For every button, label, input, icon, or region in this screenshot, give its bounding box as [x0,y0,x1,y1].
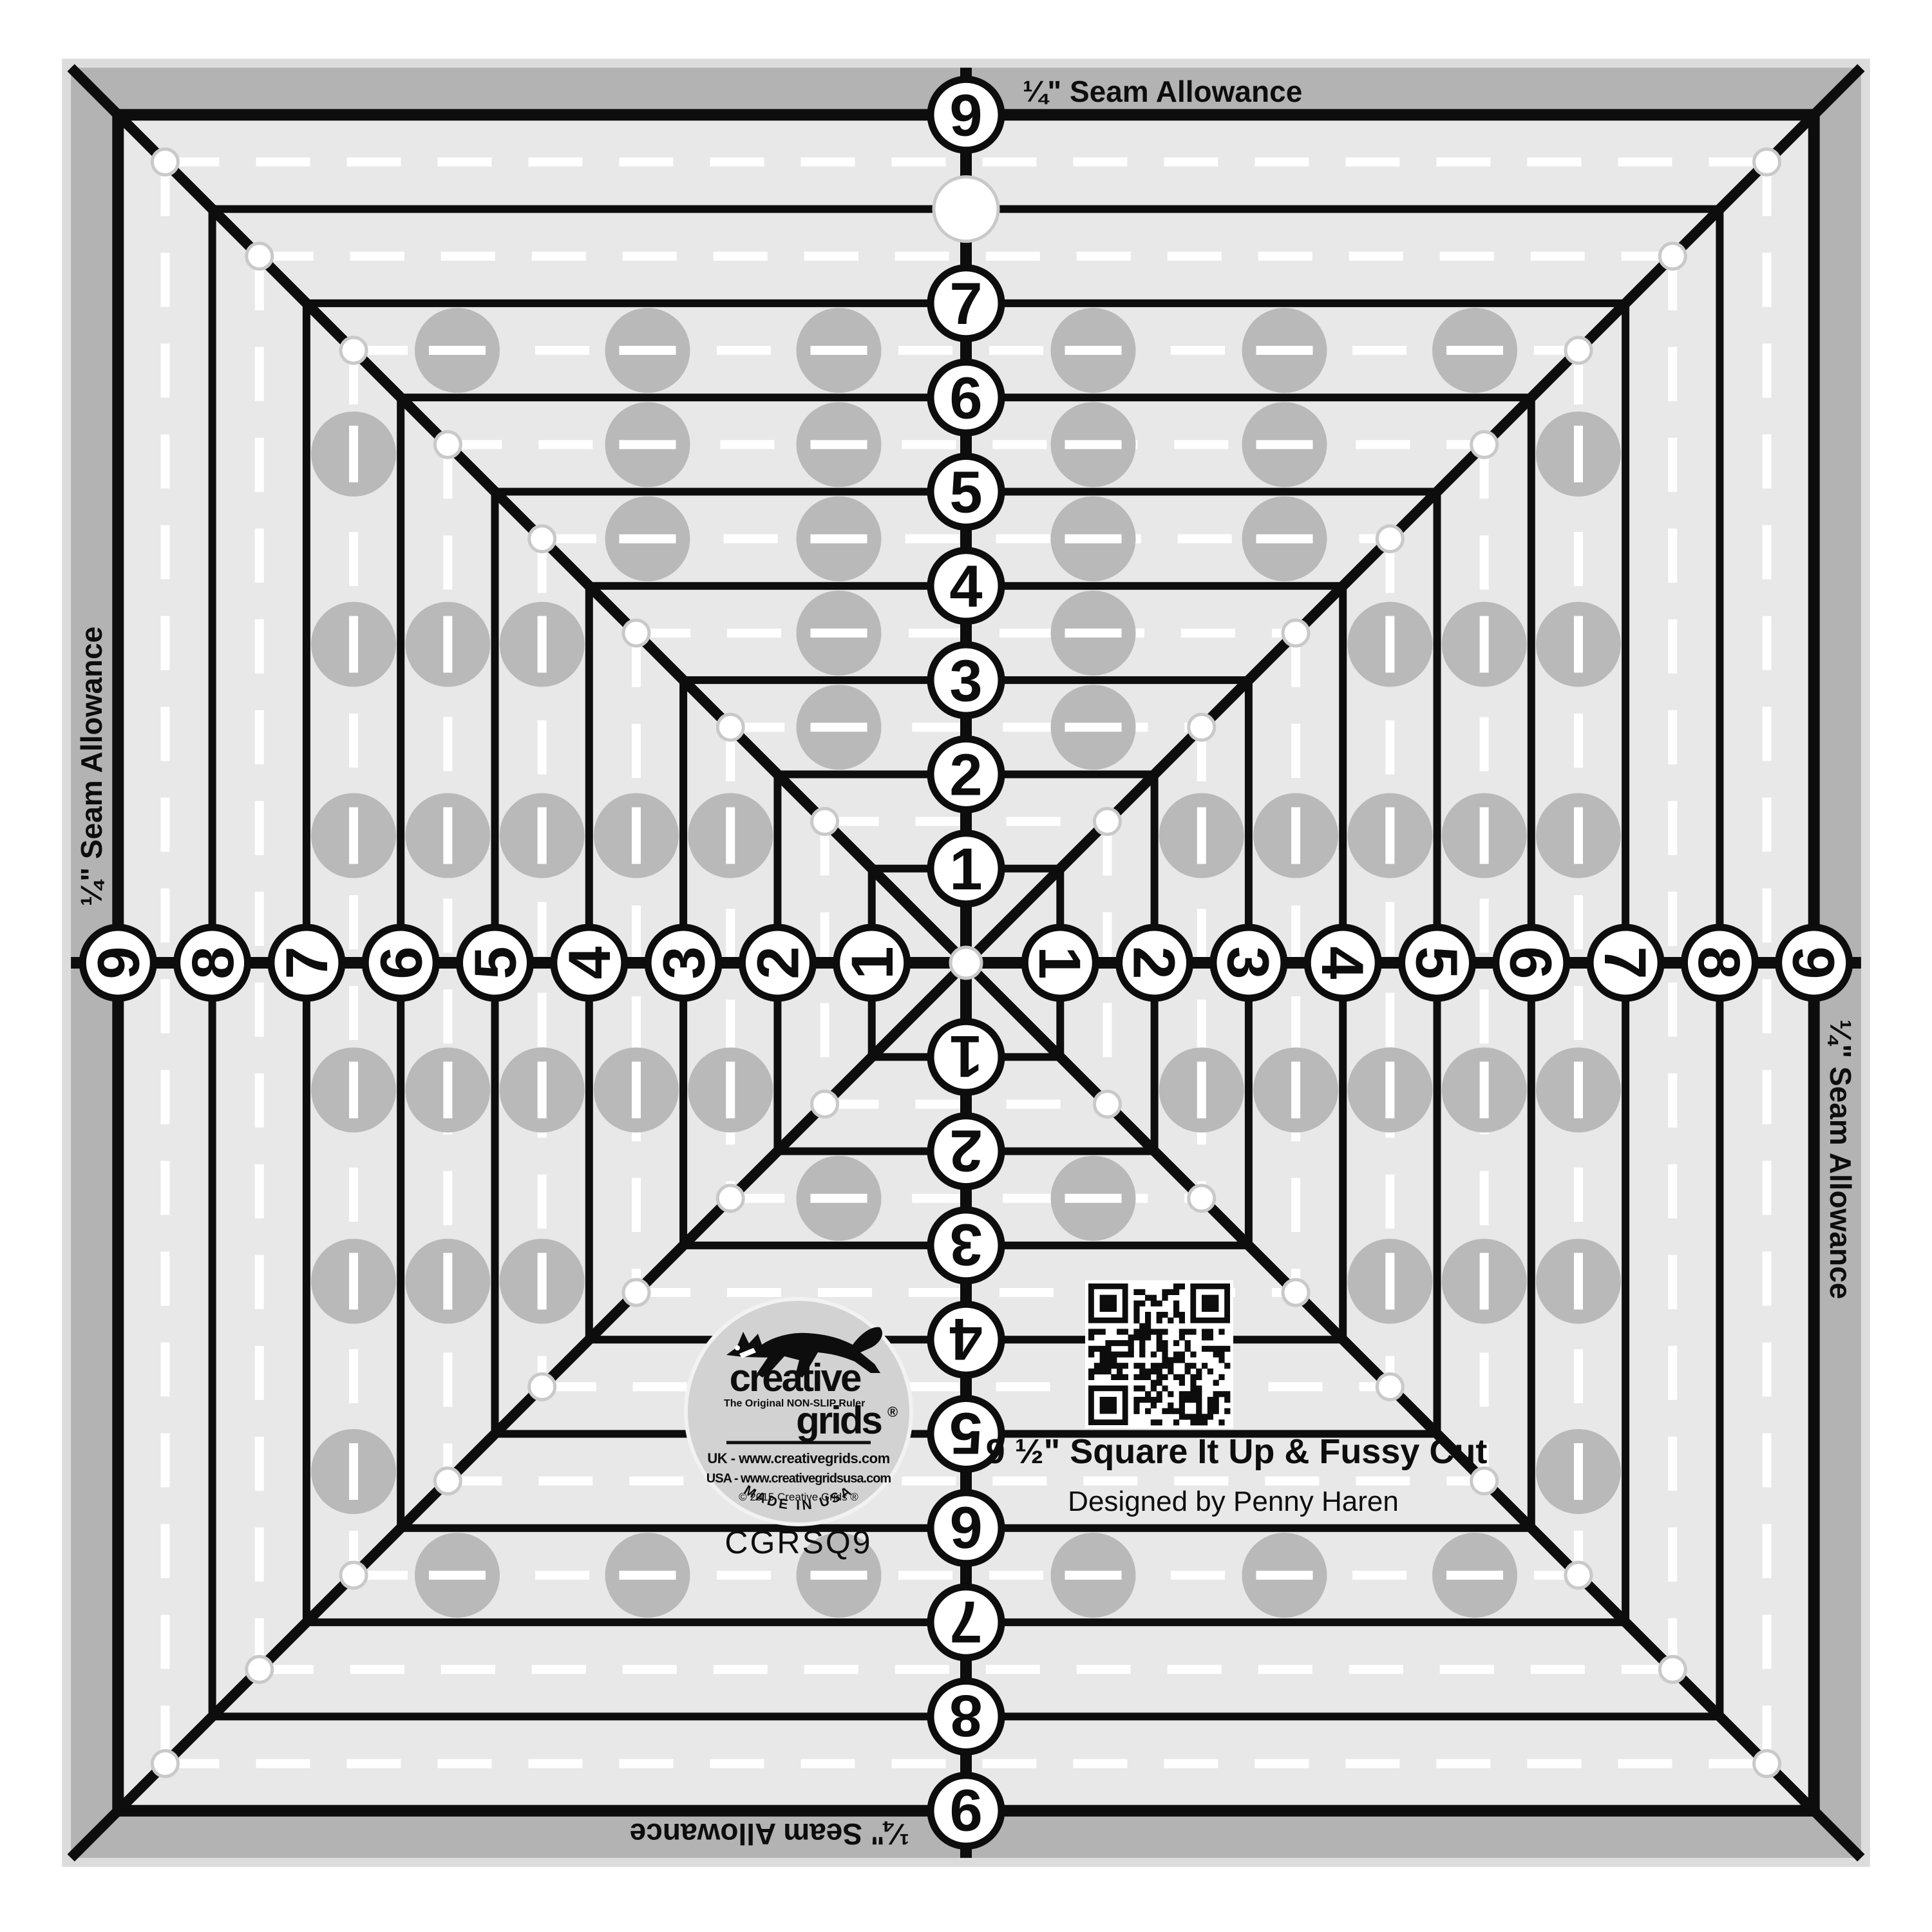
qr-module [1139,1334,1145,1340]
diagonal-marker-dot [812,809,838,835]
qr-module [1133,1408,1139,1414]
diagonal-marker-dot [341,1562,366,1588]
diagonal-marker-dot [152,1751,178,1777]
number-label: 6 [949,1495,982,1560]
qr-module [1224,1391,1230,1397]
qr-module [1105,1340,1111,1346]
grip-dot-dash [1480,616,1489,673]
grip-dot-dash [1574,1443,1583,1500]
grip-dot-dash [1065,440,1122,449]
qr-module [1100,1352,1106,1358]
number-label: 7 [949,271,982,337]
grip-dot-dash [1385,616,1394,673]
qr-module [1179,1380,1185,1386]
qr-module [1088,1329,1094,1334]
qr-module [1196,1391,1202,1397]
qr-module [1190,1414,1196,1419]
diagonal-marker-dot [623,1280,649,1305]
qr-module [1190,1391,1196,1397]
grip-dot-dash [1574,1253,1583,1309]
diagonal-marker-dot [1566,1562,1591,1588]
qr-module [1145,1323,1151,1329]
grip-dot-dash [429,1571,486,1580]
qr-module [1133,1385,1139,1391]
qr-module [1162,1385,1168,1391]
qr-module [1173,1419,1179,1425]
qr-module [1133,1329,1139,1334]
qr-module [1151,1385,1157,1391]
qr-module [1151,1380,1157,1386]
qr-module [1145,1312,1151,1318]
qr-module [1105,1346,1111,1352]
qr-module [1088,1368,1094,1374]
number-label: 5 [1403,946,1469,979]
diagonal-marker-dot [812,1091,838,1117]
qr-module [1190,1352,1196,1358]
grip-dot-dash [810,629,867,638]
qr-module [1162,1329,1168,1334]
qr-module [1122,1340,1128,1346]
qr-module [1145,1334,1151,1340]
grip-dot-dash [1574,1062,1583,1119]
qr-module [1162,1340,1168,1346]
qr-module [1133,1403,1139,1408]
qr-module [1207,1329,1213,1334]
qr-module [1139,1340,1145,1346]
qr-module [1105,1357,1111,1363]
qr-module [1133,1306,1139,1312]
qr-module [1157,1363,1162,1368]
qr-module [1133,1374,1139,1380]
qr-module [1185,1346,1191,1352]
qr-module [1151,1368,1157,1374]
qr-module [1139,1397,1145,1403]
qr-module [1151,1419,1157,1425]
qr-module [1196,1414,1202,1419]
qr-module [1162,1295,1168,1301]
qr-module [1168,1357,1173,1363]
qr-module [1117,1374,1122,1380]
grip-dot-dash [429,346,486,355]
qr-module [1094,1368,1100,1374]
diagonal-marker-dot [623,620,649,646]
diagonal-marker-dot [529,1374,555,1399]
qr-module [1100,1357,1106,1363]
qr-module [1218,1374,1224,1380]
qr-module [1224,1346,1230,1352]
grip-dot-dash [1574,807,1583,864]
grip-dot-dash [349,1253,358,1309]
qr-module [1179,1408,1185,1414]
number-label: 2 [746,946,811,979]
diagonal-marker-dot [1566,337,1591,363]
diagonal-marker-dot [247,243,272,269]
qr-module [1207,1414,1213,1419]
qr-module [1139,1363,1145,1368]
qr-module [1213,1403,1219,1408]
qr-module [1157,1318,1162,1323]
grip-dot-dash [1385,1253,1394,1309]
qr-module [1088,1374,1094,1380]
qr-module [1179,1391,1185,1397]
number-label: 1 [949,837,982,902]
qr-module [1173,1374,1179,1380]
brand-url-uk: UK - www.creativegrids.com [707,1450,889,1466]
qr-module [1162,1374,1168,1380]
grip-dot-dash [538,1062,547,1119]
qr-module [1157,1329,1162,1334]
qr-module [1157,1374,1162,1380]
qr-module [1213,1380,1219,1386]
qr-module [1196,1374,1202,1380]
grip-dot-dash [1291,807,1300,864]
qr-module [1213,1346,1219,1352]
qr-module [1202,1419,1207,1425]
qr-module [1094,1329,1100,1334]
number-label: 2 [1121,946,1186,979]
seam-allowance-top: ¼" Seam Allowance [1023,75,1302,108]
qr-module [1179,1397,1185,1403]
fussy-cut-hole [934,177,998,241]
grip-dot-dash [1065,1571,1122,1580]
number-label: 4 [557,946,623,979]
qr-module [1179,1403,1185,1408]
qr-module [1133,1363,1139,1368]
qr-module [1139,1300,1145,1306]
qr-module [1157,1419,1162,1425]
ruler-grid: 12345679123456789123456789123456789 [62,59,1870,1867]
qr-module [1105,1368,1111,1374]
grip-dot-dash [1385,807,1394,864]
grip-dot-dash [1446,346,1503,355]
number-label: 9 [949,1777,982,1843]
diagonal-marker-dot [1377,1374,1403,1399]
grip-dot-dash [632,807,641,864]
grip-dot-dash [810,346,867,355]
qr-module [1100,1368,1106,1374]
seam-allowance-right: ¼" Seam Allowance [1824,1019,1857,1299]
qr-module [1207,1334,1213,1340]
qr-module [1179,1318,1185,1323]
qr-module [1111,1374,1117,1380]
qr-module [1207,1368,1213,1374]
number-label: 6 [949,365,982,431]
number-label: 8 [180,946,246,979]
qr-module [1190,1385,1196,1391]
qr-module [1179,1352,1185,1358]
qr-module [1162,1357,1168,1363]
grip-dot-dash [1256,440,1312,449]
qr-module [1100,1363,1106,1368]
qr-module [1128,1334,1134,1340]
qr-module [1173,1289,1179,1295]
qr-module [1133,1318,1139,1323]
diagonal-marker-dot [1377,526,1403,552]
qr-module [1190,1329,1196,1334]
qr-module [1139,1323,1145,1329]
qr-module [1179,1374,1185,1380]
qr-module [1218,1346,1224,1352]
product-designer: Designed by Penny Haren [1068,1486,1399,1517]
qr-module [1145,1295,1151,1301]
grip-dot-dash [726,807,735,864]
qr-module [1128,1352,1134,1358]
qr-module [1145,1329,1151,1334]
qr-module [1145,1408,1151,1414]
qr-module [1196,1397,1202,1403]
qr-module [1133,1334,1139,1340]
qr-module [1133,1300,1139,1306]
qr-module [1100,1346,1106,1352]
grip-dot-dash [810,1194,867,1203]
qr-finder [1100,1295,1117,1312]
qr-module [1213,1408,1219,1414]
diagonal-marker-dot [1189,714,1215,740]
grip-dot-dash [349,426,358,482]
qr-module [1224,1397,1230,1403]
qr-module [1207,1346,1213,1352]
number-label: 1 [840,946,905,979]
qr-module [1139,1385,1145,1391]
qr-module [1139,1289,1145,1295]
qr-module [1185,1397,1191,1403]
qr-module [1139,1374,1145,1380]
grip-dot-dash [1574,616,1583,673]
grip-dot-dash [443,807,452,864]
qr-module [1196,1408,1202,1414]
qr-module [1122,1374,1128,1380]
grip-dot-dash [620,1571,676,1580]
diagonal-marker-dot [1283,620,1309,646]
grip-dot-dash [1385,1062,1394,1119]
diagonal-marker-dot [1472,1468,1497,1494]
qr-finder [1100,1397,1117,1414]
qr-code-icon [1085,1280,1233,1428]
qr-module [1190,1380,1196,1386]
grip-dot-dash [726,1062,735,1119]
number-label: 6 [368,946,434,979]
product-sku: CGRSQ9 [724,1524,872,1560]
qr-module [1168,1403,1173,1408]
number-label: 1 [1027,946,1092,979]
qr-module [1202,1414,1207,1419]
grip-dot-dash [538,616,547,673]
number-label: 2 [949,743,982,808]
center-hole [951,947,981,978]
grip-dot-dash [632,1062,641,1119]
diagonal-marker-dot [717,1186,743,1211]
qr-module [1162,1363,1168,1368]
qr-module [1196,1419,1202,1425]
diagonal-marker-dot [1660,243,1685,269]
qr-module [1145,1318,1151,1323]
number-label: 4 [949,1306,982,1372]
qr-module [1185,1363,1191,1368]
seam-allowance-left: ¼" Seam Allowance [75,627,108,906]
grip-dot-dash [349,807,358,864]
qr-module [1105,1363,1111,1368]
qr-module [1139,1352,1145,1358]
grip-dot-dash [620,440,676,449]
qr-finder [1202,1295,1218,1312]
number-label: 2 [949,1117,982,1183]
qr-module [1185,1329,1191,1334]
qr-module [1179,1312,1185,1318]
diagonal-marker-dot [529,526,555,552]
grip-dot-dash [620,535,676,544]
brand-url-usa: USA - www.creativegridsusa.com [706,1472,891,1486]
qr-module [1145,1368,1151,1374]
qr-module [1111,1340,1117,1346]
grip-dot-dash [1065,346,1122,355]
grip-dot-dash [538,807,547,864]
qr-module [1190,1397,1196,1403]
grip-dot-dash [443,616,452,673]
grip-dot-dash [443,1062,452,1119]
qr-module [1117,1340,1122,1346]
number-label: 5 [949,460,982,526]
grip-dot-dash [1065,723,1122,732]
qr-module [1094,1363,1100,1368]
qr-module [1162,1408,1168,1414]
number-label: 5 [463,946,529,979]
grip-dot-dash [810,535,867,544]
qr-module [1157,1391,1162,1397]
diagonal-marker-dot [1754,149,1780,175]
diagonal-marker-dot [152,149,178,175]
qr-module [1173,1352,1179,1358]
qr-module [1117,1368,1122,1374]
grip-dot-dash [1256,1571,1312,1580]
number-label: 6 [1498,946,1564,979]
qr-module [1145,1391,1151,1397]
diagonal-marker-dot [1660,1656,1685,1682]
qr-module [1157,1397,1162,1403]
qr-module [1168,1289,1173,1295]
qr-module [1151,1295,1157,1301]
qr-module [1088,1334,1094,1340]
diagonal-marker-dot [435,1468,460,1494]
qr-module [1151,1363,1157,1368]
qr-module [1168,1391,1173,1397]
grip-dot-dash [1197,1062,1206,1119]
diagonal-marker-dot [717,714,743,740]
qr-module [1179,1329,1185,1334]
qr-module [1117,1352,1122,1358]
qr-module [1128,1340,1134,1346]
qr-module [1122,1363,1128,1368]
qr-module [1173,1300,1179,1306]
logo-badge: creative The Original NON-SLIP Ruler gri… [686,1299,911,1524]
qr-module [1162,1289,1168,1295]
grip-dot-dash [1480,1062,1489,1119]
qr-module [1168,1318,1173,1323]
number-label: 1 [949,1023,982,1089]
qr-module [1207,1408,1213,1414]
diagonal-marker-dot [1283,1280,1309,1305]
grip-dot-dash [1291,1062,1300,1119]
diagonal-marker-dot [1189,1186,1215,1211]
qr-module [1168,1408,1173,1414]
number-label: 7 [274,946,340,979]
number-label: 3 [1215,946,1281,979]
qr-module [1218,1419,1224,1425]
grip-dot-dash [1446,1571,1503,1580]
number-label: 3 [651,946,717,979]
grip-dot-dash [1256,346,1312,355]
grip-dot-dash [810,723,867,732]
qr-module [1157,1380,1162,1386]
number-label: 7 [1592,946,1658,979]
qr-module [1151,1352,1157,1358]
qr-module [1173,1283,1179,1289]
qr-module [1202,1329,1207,1334]
qr-module [1196,1403,1202,1408]
qr-module [1207,1397,1213,1403]
number-label: 8 [949,1683,982,1748]
qr-module [1151,1300,1157,1306]
qr-module [1157,1340,1162,1346]
qr-module [1173,1408,1179,1414]
qr-module [1139,1368,1145,1374]
qr-module [1218,1329,1224,1334]
brand-word-creative: creative [730,1356,861,1399]
number-label: 8 [1686,946,1752,979]
number-label: 4 [949,554,982,620]
qr-module [1105,1352,1111,1358]
qr-module [1218,1357,1224,1363]
qr-module [1213,1391,1219,1397]
qr-module [1190,1374,1196,1380]
diagonal-marker-dot [1472,431,1497,457]
number-label: 4 [1309,946,1375,979]
qr-module [1224,1408,1230,1414]
qr-module [1185,1340,1191,1346]
diagonal-marker-dot [435,431,460,457]
seam-allowance-bottom: ¼" Seam Allowance [630,1817,909,1851]
qr-module [1202,1363,1207,1368]
qr-module [1157,1346,1162,1352]
brand-word-grids: grids [796,1399,881,1442]
qr-module [1145,1397,1151,1403]
grip-dot-dash [443,1253,452,1309]
qr-module [1139,1329,1145,1334]
qr-module [1139,1346,1145,1352]
qr-module [1162,1312,1168,1318]
number-label: 5 [949,1400,982,1466]
number-label: 3 [949,648,982,714]
grip-dot-dash [1480,807,1489,864]
grip-dot-dash [620,346,676,355]
grip-dot-dash [810,440,867,449]
qr-module [1179,1414,1185,1419]
qr-module [1218,1352,1224,1358]
grip-dot-dash [1256,535,1312,544]
diagonal-marker-dot [1094,1091,1120,1117]
qr-module [1100,1329,1106,1334]
grip-dot-dash [810,1571,867,1580]
number-label: 9 [1781,946,1846,979]
qr-module [1185,1391,1191,1397]
qr-module [1145,1374,1151,1380]
qr-module [1122,1352,1128,1358]
number-label: 3 [949,1212,982,1278]
qr-module [1224,1363,1230,1368]
product-title: 9 ½" Square It Up & Fussy Cut [986,1432,1488,1471]
qr-module [1111,1363,1117,1368]
qr-module [1168,1363,1173,1368]
diagonal-marker-dot [1094,809,1120,835]
